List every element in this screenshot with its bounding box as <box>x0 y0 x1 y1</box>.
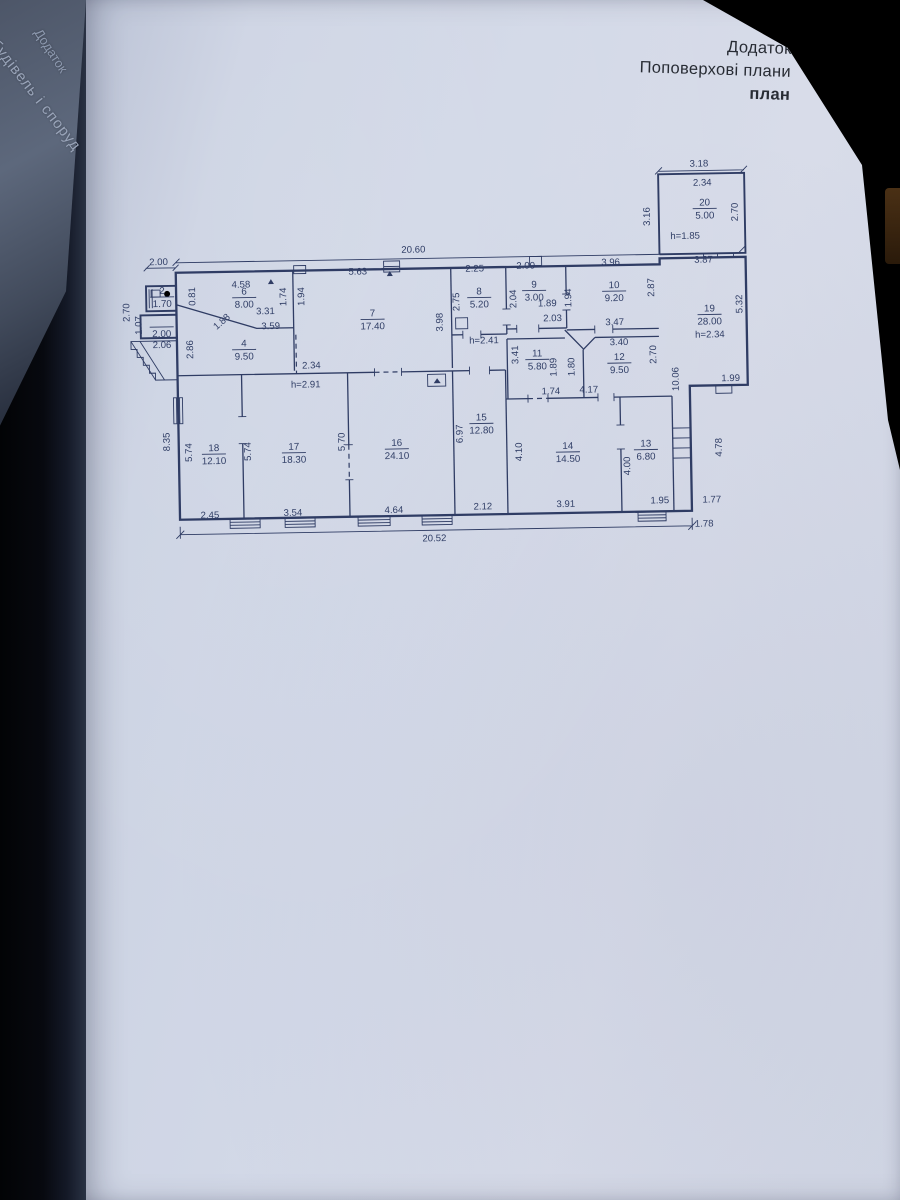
dimension-label: 4.00 <box>622 456 633 475</box>
dimension-label: 3.91 <box>556 499 575 510</box>
room-number: 18 <box>208 443 220 454</box>
dimension-label: 10.06 <box>670 367 681 391</box>
dimension-label: 3.98 <box>434 313 445 332</box>
dimension-label: 1.95 <box>650 495 669 506</box>
dimension-label: 1.74 <box>541 386 561 397</box>
room-area: 5.80 <box>528 361 548 372</box>
room-area: 9.50 <box>610 365 630 376</box>
room-number: 15 <box>476 412 488 423</box>
dimension-label: 4.78 <box>714 438 725 457</box>
dimension-label: 2.00 <box>149 257 168 268</box>
room-number: 10 <box>608 280 620 291</box>
dimension-label: 1.89 <box>548 358 559 377</box>
room-area: 9.20 <box>605 293 625 304</box>
dimension-label: 0.81 <box>187 287 198 306</box>
room-number: 7 <box>370 308 376 319</box>
dimension-label: 2.86 <box>185 340 196 359</box>
floor-plan-svg: 20.602.002.252.003.963.873.182.343.162.7… <box>0 0 900 1200</box>
dimension-label: 2.25 <box>465 263 484 274</box>
room-area: 18.30 <box>282 455 307 466</box>
room-area: 17.40 <box>360 321 385 332</box>
room-area: 24.10 <box>385 451 410 462</box>
room-height-note: h=2.34 <box>695 329 725 341</box>
dimension-label: h=2.91 <box>291 379 321 391</box>
room-number: 16 <box>391 438 403 449</box>
room-number: 17 <box>288 442 299 453</box>
room-area: 1.70 <box>153 299 173 310</box>
dimension-label: h=1.85 <box>670 231 700 243</box>
room-number: 20 <box>699 197 711 208</box>
dimension-label: 3.54 <box>284 508 304 519</box>
dimension-label: 5.70 <box>337 432 348 451</box>
dimension-label: 2.70 <box>121 303 132 322</box>
room-area: 12.10 <box>202 456 227 467</box>
dimension-label: 8.35 <box>162 433 173 452</box>
dimension-label: 5.74 <box>184 442 195 462</box>
room-area: 2.00 <box>152 329 172 340</box>
room-number: 13 <box>640 438 652 449</box>
room-number: 14 <box>562 441 574 452</box>
dimension-label: 2.00 <box>516 260 535 271</box>
room-number: 6 <box>241 287 247 298</box>
dimension-label: 3.96 <box>601 257 620 268</box>
floor-plan: 20.602.002.252.003.963.873.182.343.162.7… <box>119 158 754 550</box>
room-area: 5.20 <box>470 299 490 310</box>
room-number: 9 <box>531 279 537 290</box>
dimension-label: 1.07 <box>133 316 144 335</box>
book-cover-edge-detail <box>885 188 900 264</box>
dimension-label: 1.99 <box>721 373 740 384</box>
dimension-label: 2.04 <box>508 289 519 309</box>
dimension-label: 2.34 <box>693 177 713 188</box>
photo-of-floorplan-page: { "header": { "line1": "Додаток", "line2… <box>0 0 900 1200</box>
room-number: 8 <box>476 286 482 297</box>
dimension-label: 2.03 <box>543 313 562 324</box>
dimension-label: 1.94 <box>563 288 574 308</box>
dimension-label: 20.52 <box>422 533 446 544</box>
room-number: 12 <box>614 352 625 363</box>
dimension-label: 1.74 <box>278 287 289 307</box>
dimension-label: 2.06 <box>153 340 172 351</box>
room-area: 6.80 <box>636 451 656 462</box>
room-area: 8.00 <box>235 299 255 310</box>
dimension-label: 2.87 <box>646 278 657 297</box>
dimension-label: 6.97 <box>454 424 465 443</box>
dimension-label: 1.88 <box>211 312 232 333</box>
dimension-label: 3.16 <box>642 207 653 226</box>
dimension-label: 2.12 <box>473 501 492 512</box>
dimension-label: 2.45 <box>201 510 220 521</box>
room-area: 12.80 <box>469 425 494 436</box>
dimension-label: 3.87 <box>694 254 713 265</box>
dimension-label: 20.60 <box>401 244 425 255</box>
dimension-label: 4.64 <box>384 505 404 516</box>
dimension-label: 2.70 <box>648 345 659 364</box>
dimension-label: 5.32 <box>734 294 745 313</box>
room-number: 2 <box>159 286 165 297</box>
room-area: 5.00 <box>695 210 715 221</box>
dimension-label: 3.18 <box>689 158 708 169</box>
room-area: 14.50 <box>556 454 581 465</box>
dimension-label: 1.78 <box>695 518 714 529</box>
dimension-label: 3.41 <box>510 345 521 364</box>
room-number: 11 <box>532 348 542 359</box>
dimension-label: h=2.41 <box>469 335 499 347</box>
dimension-label: 4.10 <box>514 442 525 461</box>
plan-annotations: 20.602.002.252.003.963.873.182.343.162.7… <box>119 158 750 550</box>
dimension-label: 3.59 <box>261 321 280 332</box>
room-number: 4 <box>241 339 247 350</box>
dimension-label: 5.63 <box>348 266 367 277</box>
dimension-label: 1.94 <box>296 286 307 306</box>
room-area: 3.00 <box>525 292 545 303</box>
dimension-label: 3.31 <box>256 306 275 317</box>
room-number: 19 <box>704 303 715 314</box>
dimension-label: 1.80 <box>566 357 577 376</box>
dimension-label: 2.75 <box>451 292 462 311</box>
dimension-label: 4.17 <box>579 384 598 395</box>
dimension-label: 1.77 <box>702 494 721 505</box>
dimension-label: 3.47 <box>605 317 624 328</box>
dimension-label: 2.34 <box>302 360 322 371</box>
room-area: 9.50 <box>235 351 255 362</box>
dimension-label: 5.74 <box>243 441 254 461</box>
dimension-label: 2.70 <box>730 203 741 222</box>
room-area: 28.00 <box>697 316 722 327</box>
dimension-label: 3.40 <box>610 337 629 348</box>
